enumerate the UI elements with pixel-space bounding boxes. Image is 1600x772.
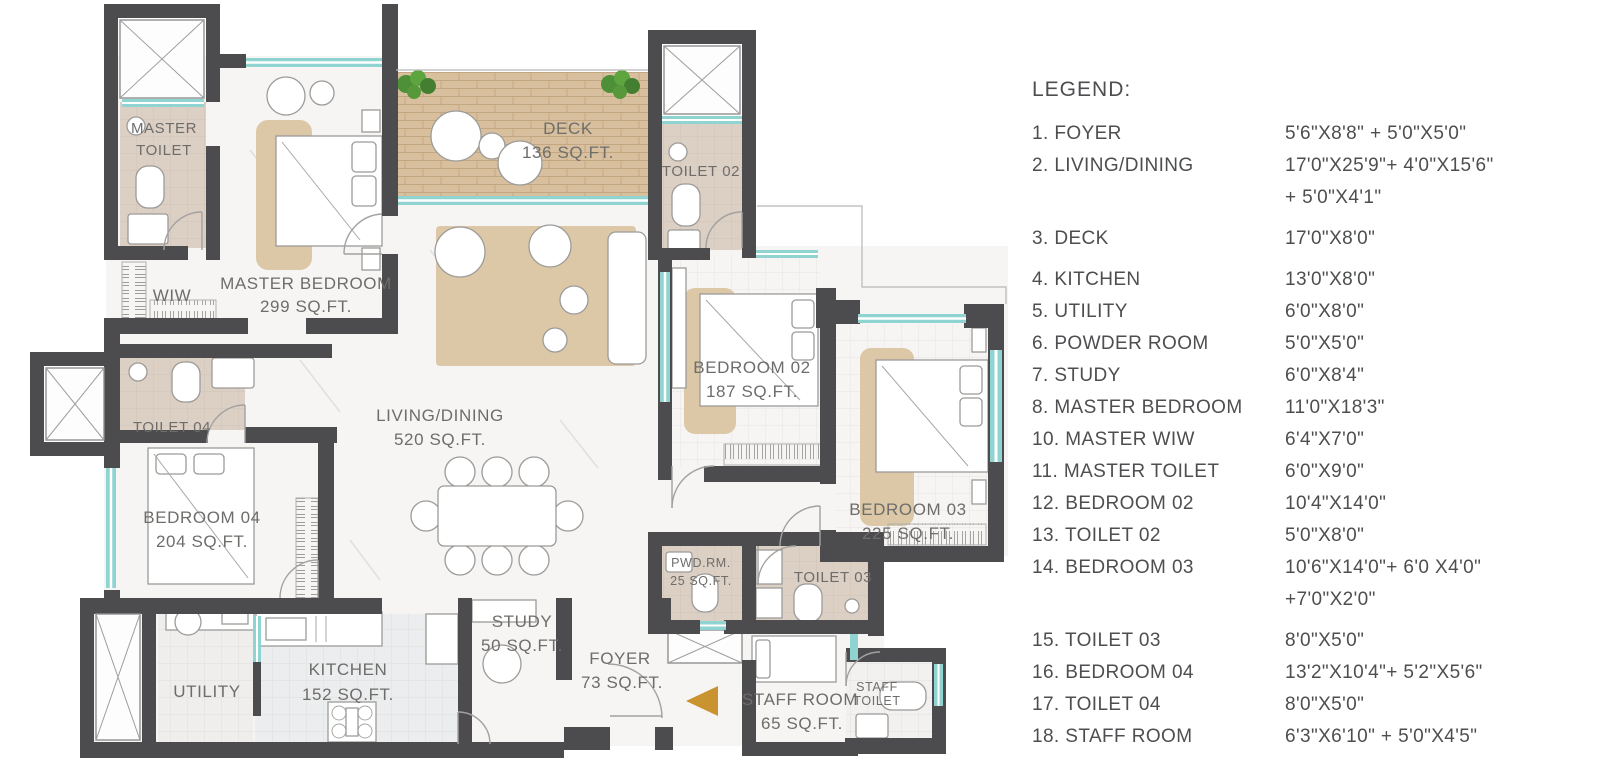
floor-plan-drawing: MASTER TOILET WIW MASTER BEDROOM 299 SQ.…	[0, 0, 1030, 772]
wardrobe	[724, 444, 828, 465]
legend-item: 16. BEDROOM 0413'2"X10'4"+ 5'2"X5'6"	[1032, 657, 1502, 689]
vanity	[756, 550, 782, 584]
duct-shaft	[96, 614, 140, 740]
legend-item-name: 5. UTILITY	[1032, 296, 1285, 328]
master-bedroom-label: MASTER BEDROOM	[220, 274, 392, 293]
sink	[128, 214, 168, 244]
armchair	[529, 225, 571, 267]
legend-item-dimensions: 13'2"X10'4"+ 5'2"X5'6"	[1285, 657, 1502, 689]
deck-area: 136 SQ.FT.	[522, 143, 614, 162]
legend-item-dimensions: 5'0"X5'0"	[1285, 328, 1502, 360]
legend-item-dimensions: 8'0"X5'0"	[1285, 689, 1502, 721]
window	[106, 468, 116, 588]
wc	[672, 184, 700, 226]
legend-item-dimensions: 6'4"X7'0"	[1285, 424, 1502, 456]
legend-item-dimensions: 10'6"X14'0"+ 6'0 X4'0"	[1285, 552, 1502, 584]
legend-item-continuation: +7'0"X2'0"	[1032, 584, 1502, 616]
window	[934, 664, 943, 706]
armchair	[435, 227, 485, 277]
bedroom-02-label: BEDROOM 02	[693, 358, 810, 377]
legend-item-dimensions: + 5'0"X4'1"	[1285, 182, 1502, 214]
nightstand	[972, 480, 986, 504]
legend-item: 13. TOILET 025'0"X8'0"	[1032, 520, 1502, 552]
side-table	[310, 81, 334, 105]
bedroom-03-label: BEDROOM 03	[849, 500, 966, 519]
pillow	[194, 454, 224, 474]
kitchen-area: 152 SQ.FT.	[302, 685, 394, 704]
legend-item-dimensions: 13'0"X8'0"	[1285, 264, 1502, 296]
pillow	[156, 454, 186, 474]
wiw-wardrobe	[122, 262, 146, 326]
pillow	[960, 398, 982, 426]
pillow	[756, 640, 770, 678]
legend-item-dimensions: 11'0"X18'3"	[1285, 392, 1502, 424]
wardrobe	[296, 498, 318, 598]
foyer-label: FOYER	[589, 649, 651, 668]
window	[122, 99, 204, 107]
sofa	[608, 232, 646, 364]
toilet-02-label: TOILET 02	[662, 163, 740, 180]
legend-item-name: 14. BEDROOM 03	[1032, 552, 1285, 584]
legend-item-dimensions: 5'0"X8'0"	[1285, 520, 1502, 552]
legend-item: 10. MASTER WIW6'4"X7'0"	[1032, 424, 1502, 456]
nightstand	[362, 110, 380, 132]
pillow	[792, 332, 814, 360]
fridge	[426, 614, 458, 664]
legend-item-name: 15. TOILET 03	[1032, 625, 1285, 657]
legend-item: 4. KITCHEN13'0"X8'0"	[1032, 264, 1502, 296]
legend-item: 14. BEDROOM 0310'6"X14'0"+ 6'0 X4'0"	[1032, 552, 1502, 584]
toilet-03-label: TOILET 03	[794, 569, 872, 586]
legend-item: 5. UTILITY6'0"X8'0"	[1032, 296, 1502, 328]
legend-item: 1. FOYER5'6"X8'8" + 5'0"X5'0"	[1032, 118, 1502, 150]
window	[700, 621, 726, 630]
armchair	[267, 77, 305, 115]
toilet-04-label: TOILET 04	[133, 419, 211, 436]
legend-item-dimensions: 6'0"X8'4"	[1285, 360, 1502, 392]
legend-item-dimensions: 5'6"X8'8" + 5'0"X5'0"	[1285, 118, 1502, 150]
legend-item: 17. TOILET 048'0"X5'0"	[1032, 689, 1502, 721]
wc	[794, 584, 822, 622]
shower-head	[669, 143, 687, 161]
legend-item-dimensions: 6'3"X6'10" + 5'0"X4'5"	[1285, 721, 1502, 753]
kitchen-label: KITCHEN	[309, 660, 388, 679]
window	[662, 116, 742, 124]
shower-drain	[845, 599, 859, 613]
pillow	[960, 366, 982, 394]
legend-item-dimensions: 17'0"X8'0"	[1285, 223, 1502, 255]
pillow	[352, 142, 376, 172]
legend-item-continuation: + 5'0"X4'1"	[1032, 182, 1502, 214]
legend-item-name: 18. STAFF ROOM	[1032, 721, 1285, 753]
legend-item: 6. POWDER ROOM5'0"X5'0"	[1032, 328, 1502, 360]
legend-item-dimensions: 8'0"X5'0"	[1285, 625, 1502, 657]
legend-item-name: 12. BEDROOM 02	[1032, 488, 1285, 520]
legend-item-name: 13. TOILET 02	[1032, 520, 1285, 552]
window	[858, 314, 966, 323]
legend-item: 12. BEDROOM 0210'4"X14'0"	[1032, 488, 1502, 520]
legend-item-name: 10. MASTER WIW	[1032, 424, 1285, 456]
floor-plan-canvas: MASTER TOILET WIW MASTER BEDROOM 299 SQ.…	[0, 0, 1600, 772]
window	[246, 58, 382, 67]
legend-item: 15. TOILET 038'0"X5'0"	[1032, 625, 1502, 657]
legend-item-dimensions: 17'0"X25'9"+ 4'0"X15'6"	[1285, 150, 1502, 182]
shower-head	[129, 363, 147, 381]
sink	[212, 358, 254, 388]
master-bedroom-area: 299 SQ.FT.	[260, 297, 352, 316]
legend-item: 7. STUDY6'0"X8'4"	[1032, 360, 1502, 392]
legend-item: 18. STAFF ROOM6'3"X6'10" + 5'0"X4'5"	[1032, 721, 1502, 753]
master-toilet-label: TOILET	[136, 142, 192, 159]
legend-item-name: 1. FOYER	[1032, 118, 1285, 150]
duct-shaft	[664, 46, 740, 114]
wiw-label: WIW	[153, 286, 192, 305]
study-area: 50 SQ.FT.	[481, 636, 563, 655]
bedroom-04-label: BEDROOM 04	[143, 508, 260, 527]
staff-toilet-label: STAFF	[856, 680, 898, 694]
pwd-rm-label: PWD.RM.	[671, 556, 731, 570]
nightstand	[972, 328, 986, 352]
duct-shaft	[46, 368, 104, 440]
staff-room-area: 65 SQ.FT.	[761, 714, 843, 733]
window	[850, 634, 858, 660]
window-ledge	[672, 268, 686, 388]
window	[398, 196, 648, 205]
deck-label: DECK	[543, 119, 593, 138]
floor-plan-svg: MASTER TOILET WIW MASTER BEDROOM 299 SQ.…	[0, 0, 1030, 772]
legend-item-dimensions: 10'4"X14'0"	[1285, 488, 1502, 520]
staff-toilet-label: TOILET	[853, 694, 900, 708]
nightstand	[362, 248, 380, 270]
pouf	[560, 286, 588, 314]
staff-room-label: STAFF ROOM	[742, 690, 858, 709]
sink	[856, 714, 888, 738]
vanity	[756, 588, 782, 618]
legend-rows: 1. FOYER5'6"X8'8" + 5'0"X5'0"2. LIVING/D…	[1032, 118, 1502, 753]
window	[660, 272, 670, 402]
legend-item-dimensions: 6'0"X8'0"	[1285, 296, 1502, 328]
living-dining-label: LIVING/DINING	[376, 406, 504, 425]
legend-item: 2. LIVING/DINING17'0"X25'9"+ 4'0"X15'6"	[1032, 150, 1502, 182]
stove	[328, 702, 376, 742]
legend-item-dimensions: 6'0"X9'0"	[1285, 456, 1502, 488]
legend-item-name: 8. MASTER BEDROOM	[1032, 392, 1285, 424]
legend-item: 8. MASTER BEDROOM11'0"X18'3"	[1032, 392, 1502, 424]
wc	[172, 362, 200, 402]
legend-panel: LEGEND: 1. FOYER5'6"X8'8" + 5'0"X5'0"2. …	[1032, 78, 1502, 753]
legend-title: LEGEND:	[1032, 78, 1502, 102]
bedroom-02-area: 187 SQ.FT.	[706, 382, 798, 401]
kitchen-sink	[266, 618, 306, 640]
legend-item-name: 11. MASTER TOILET	[1032, 456, 1285, 488]
legend-item-dimensions: +7'0"X2'0"	[1285, 584, 1502, 616]
master-toilet-label: MASTER	[131, 120, 197, 137]
legend-item-name: 16. BEDROOM 04	[1032, 657, 1285, 689]
legend-item-name: 4. KITCHEN	[1032, 264, 1285, 296]
elevator-shaft	[120, 20, 204, 98]
window	[253, 616, 261, 662]
pillow	[352, 176, 376, 206]
legend-item-name: 17. TOILET 04	[1032, 689, 1285, 721]
pillow	[792, 300, 814, 328]
legend-item-name: 6. POWDER ROOM	[1032, 328, 1285, 360]
pwd-rm-area: 25 SQ.FT.	[670, 574, 732, 588]
foyer-area: 73 SQ.FT.	[581, 673, 663, 692]
bedroom-04-area: 204 SQ.FT.	[156, 532, 248, 551]
deck-chair	[431, 111, 481, 161]
study-label: STUDY	[492, 612, 553, 631]
wc	[136, 166, 164, 208]
window	[756, 250, 818, 258]
legend-item: 11. MASTER TOILET6'0"X9'0"	[1032, 456, 1502, 488]
legend-item-name: 7. STUDY	[1032, 360, 1285, 392]
legend-item-name: 2. LIVING/DINING	[1032, 150, 1285, 182]
legend-item: 3. DECK17'0"X8'0"	[1032, 223, 1502, 255]
bedroom-03-area: 225 SQ.FT.	[862, 524, 954, 543]
utility-label: UTILITY	[173, 682, 241, 701]
window	[990, 350, 1002, 462]
legend-item-name: 3. DECK	[1032, 223, 1285, 255]
living-dining-area: 520 SQ.FT.	[394, 430, 486, 449]
pouf	[543, 328, 567, 352]
